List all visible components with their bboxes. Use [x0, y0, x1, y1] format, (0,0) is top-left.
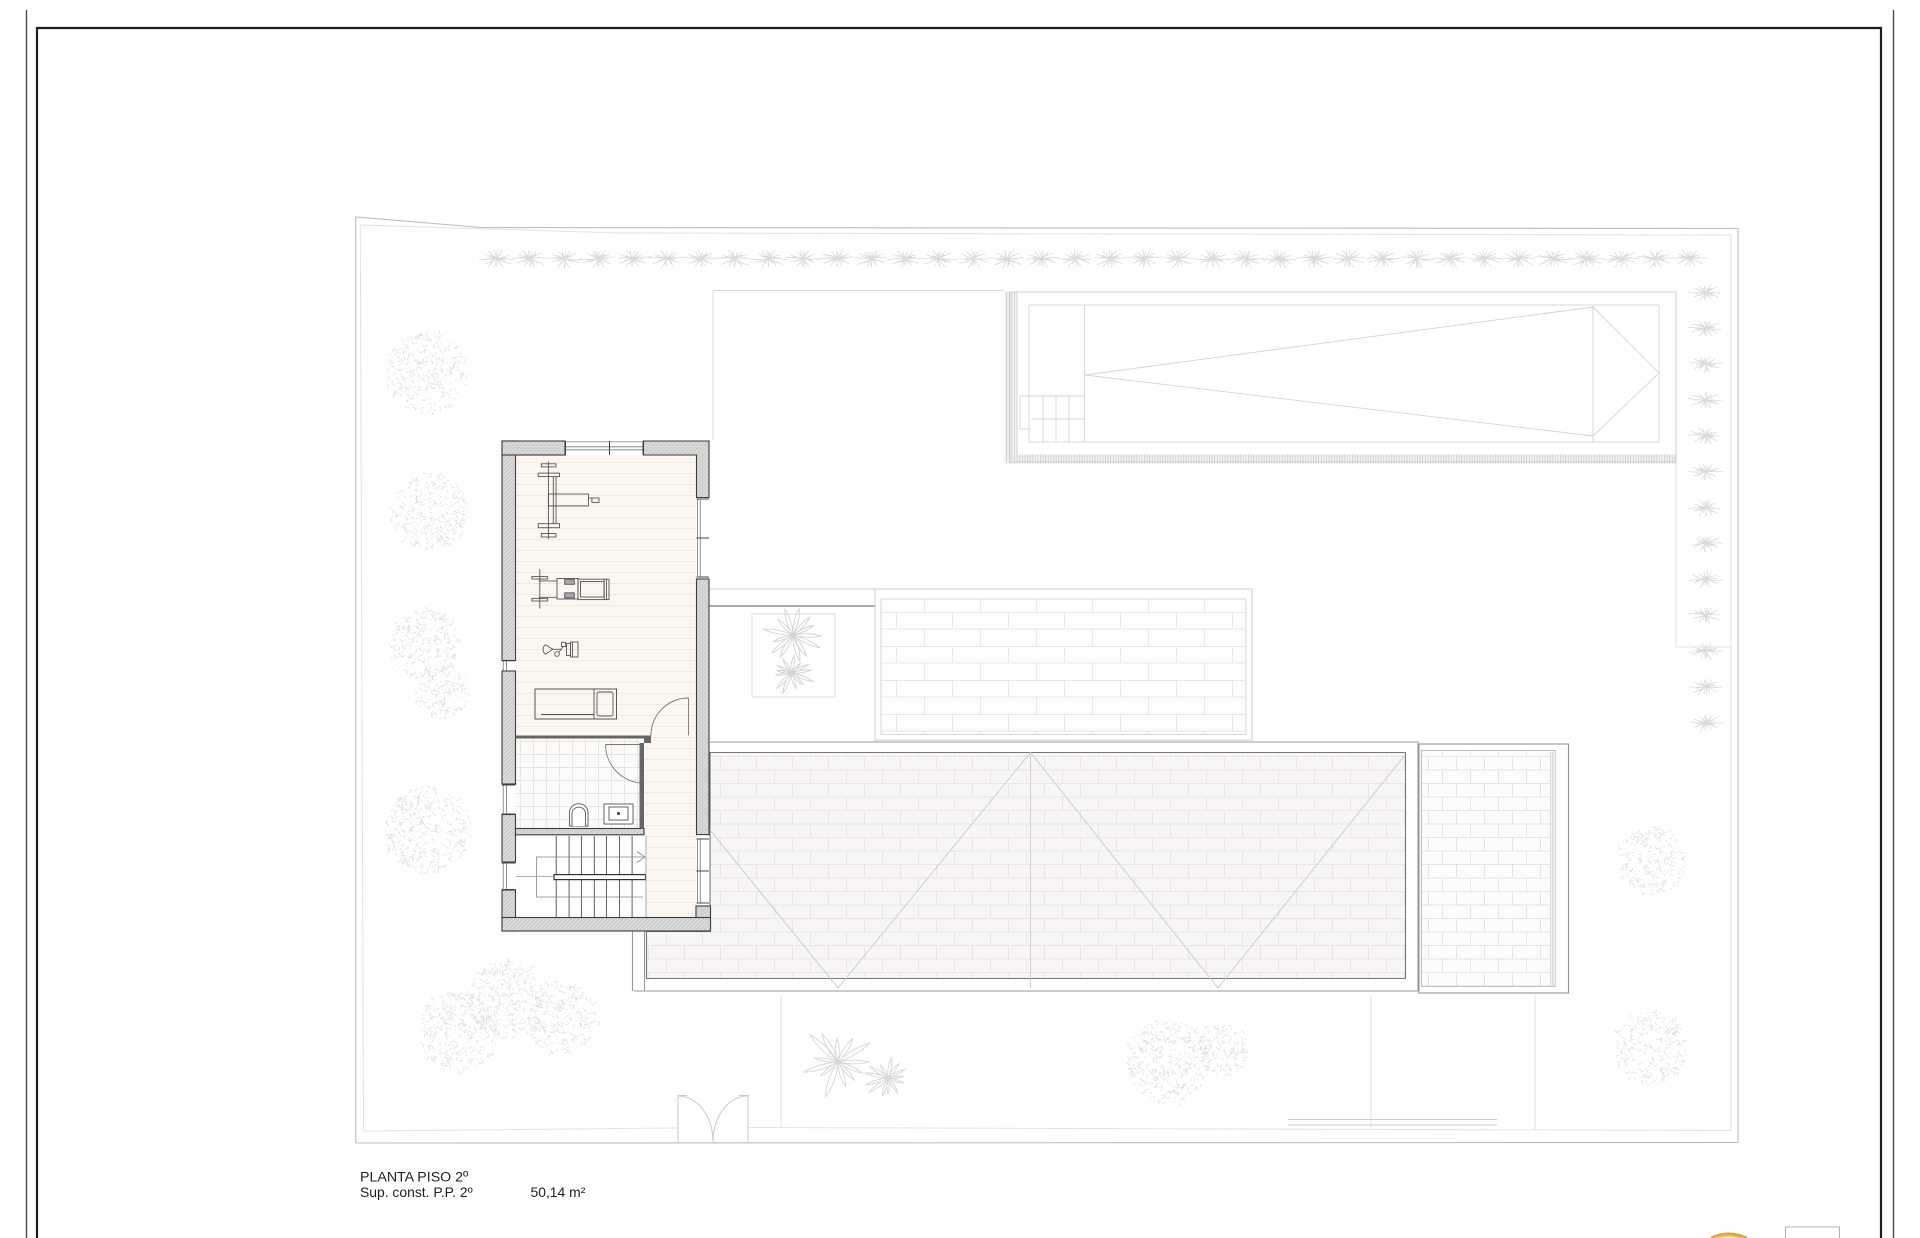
svg-text:Sup. const. P.P. 2º: Sup. const. P.P. 2º [360, 1184, 473, 1200]
svg-text:50,14 m²: 50,14 m² [531, 1184, 586, 1200]
